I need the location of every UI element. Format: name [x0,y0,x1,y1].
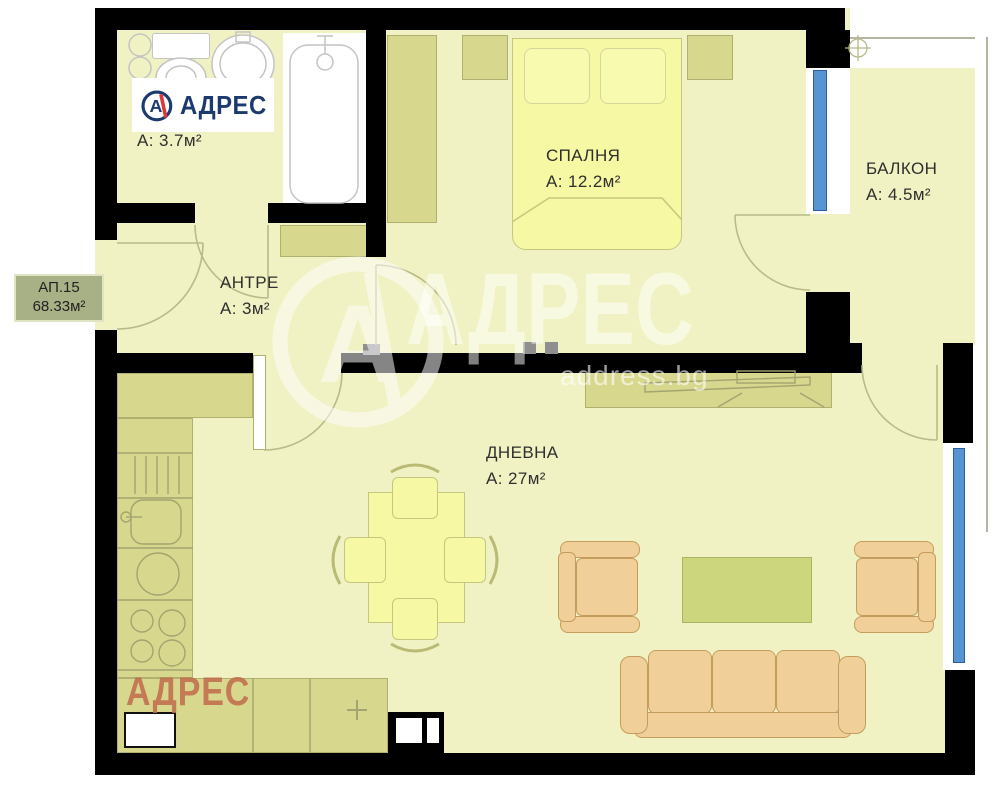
wall-middle-left [117,353,253,373]
balcony-name: БАЛКОН [866,156,937,182]
wall-left-lower [95,330,117,775]
balcony-outer-wall-top [848,37,988,68]
nightstand-left [462,35,508,80]
balcony-label: БАЛКОН А: 4.5м² [866,156,937,208]
balcony-area: А: 4.5м² [866,182,937,208]
hallway-name: АНТРЕ [220,270,279,296]
dining-chair-left [344,537,386,583]
toilet-tank [152,33,210,59]
wall-bedroom-right-lower [806,292,850,354]
dining-chair-top [392,477,438,519]
washing-machine [124,712,176,748]
bedroom-label: СПАЛНЯ А: 12.2м² [546,143,621,195]
hallway-label: АНТРЕ А: 3м² [220,270,279,322]
wall-bathroom-bottom-right [268,203,386,223]
coffee-table [682,557,812,623]
kitchen-counter-left [117,418,193,678]
kitchen-counter-top [117,373,253,418]
sofa-cushion-1 [648,650,712,714]
watermark-corner-text: АДРЕС [126,672,250,712]
dining-chair-bottom [392,598,438,640]
wall-living-right-upper [943,343,973,443]
window-living-right [953,448,965,663]
living-room-label: ДНЕВНА А: 27м² [486,440,558,492]
bathtub [283,33,366,215]
wall-bedroom-right-upper [806,30,850,68]
sofa-arm-left [620,656,648,734]
apartment-total-area: 68.33м² [16,297,102,316]
door-jamb-marker-1 [363,344,380,355]
hallway-area: А: 3м² [220,296,279,322]
wall-living-right-lower [945,668,975,758]
armchair-left-back [558,552,576,622]
apartment-badge: АП.15 68.33м² [14,274,104,322]
armchair-right-back [918,552,936,622]
living-room-name: ДНЕВНА [486,440,558,466]
bedroom-area: А: 12.2м² [546,169,621,195]
living-room-area: А: 27м² [486,466,558,492]
sofa-base [634,712,852,738]
dining-chair-right [444,537,486,583]
apartment-id: АП.15 [16,278,102,297]
hallway-cabinet [280,225,368,257]
wall-top [95,8,845,30]
floor-plan: А А: 3.7м² СПАЛНЯ А: 12.2м² БАЛКОН А: 4.… [0,0,1000,792]
agency-logo-icon: А [139,86,175,124]
wardrobe [387,35,437,223]
pillow-left [524,48,590,104]
shaft-opening-1 [396,718,422,743]
watermark-domain: address.bg [560,360,709,392]
watermark-center-text: АДРЕС [406,258,694,360]
agency-logo-text: АДРЕС [180,90,267,121]
sofa-arm-right [838,656,866,734]
pillow-right [600,48,666,104]
armchair-right-cushion [856,558,918,616]
wall-bathroom-bottom-left [95,203,195,223]
bedroom-name: СПАЛНЯ [546,143,621,169]
sofa-cushion-3 [776,650,840,714]
balcony-outer-wall-right [975,37,988,532]
window-bedroom-balcony [813,70,827,211]
sofa-cushion-2 [712,650,776,714]
armchair-left-cushion [576,558,638,616]
shaft-opening-2 [427,718,439,743]
agency-logo: А АДРЕС [132,78,274,132]
wall-bottom [95,753,975,775]
nightstand-right [687,35,733,80]
door-leaf-hallway-living [253,355,266,450]
